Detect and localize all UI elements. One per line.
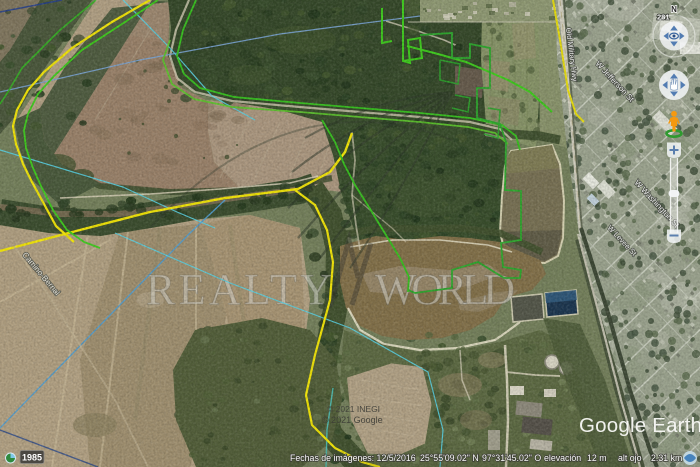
svg-text:Google Earth: Google Earth	[579, 414, 700, 437]
svg-text:25°55'09.02" N: 25°55'09.02" N	[420, 453, 479, 463]
svg-text:2.31 km: 2.31 km	[651, 453, 682, 463]
svg-text:N: N	[671, 5, 677, 14]
svg-text:elevación: elevación	[544, 453, 581, 463]
svg-text:12 m: 12 m	[587, 453, 607, 463]
svg-text:alt ojo: alt ojo	[618, 453, 642, 463]
svg-text:© 2021 Google: © 2021 Google	[322, 415, 383, 425]
svg-text:Fechas de imágenes: 12/5/2016: Fechas de imágenes: 12/5/2016	[290, 453, 416, 463]
svg-text:1985: 1985	[22, 453, 42, 463]
svg-text:97°31'45.02" O: 97°31'45.02" O	[482, 453, 541, 463]
svg-text:© 2021 INEGI: © 2021 INEGI	[327, 404, 380, 414]
